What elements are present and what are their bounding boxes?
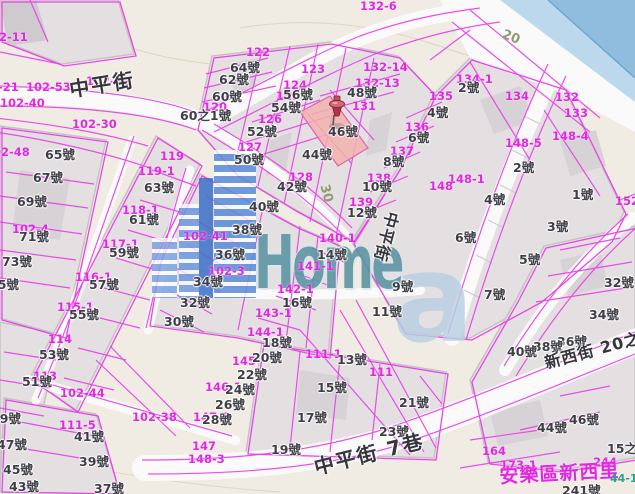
watermark-tower-icon — [214, 150, 256, 298]
map-canvas — [0, 0, 635, 494]
watermark-tower-icon — [199, 178, 213, 298]
watermark-tower-icon — [152, 238, 177, 298]
watermark-buildings-icon — [152, 150, 262, 298]
cadastral-map: Home a 132-6102-11102-52102-21102-53102-… — [0, 0, 635, 494]
